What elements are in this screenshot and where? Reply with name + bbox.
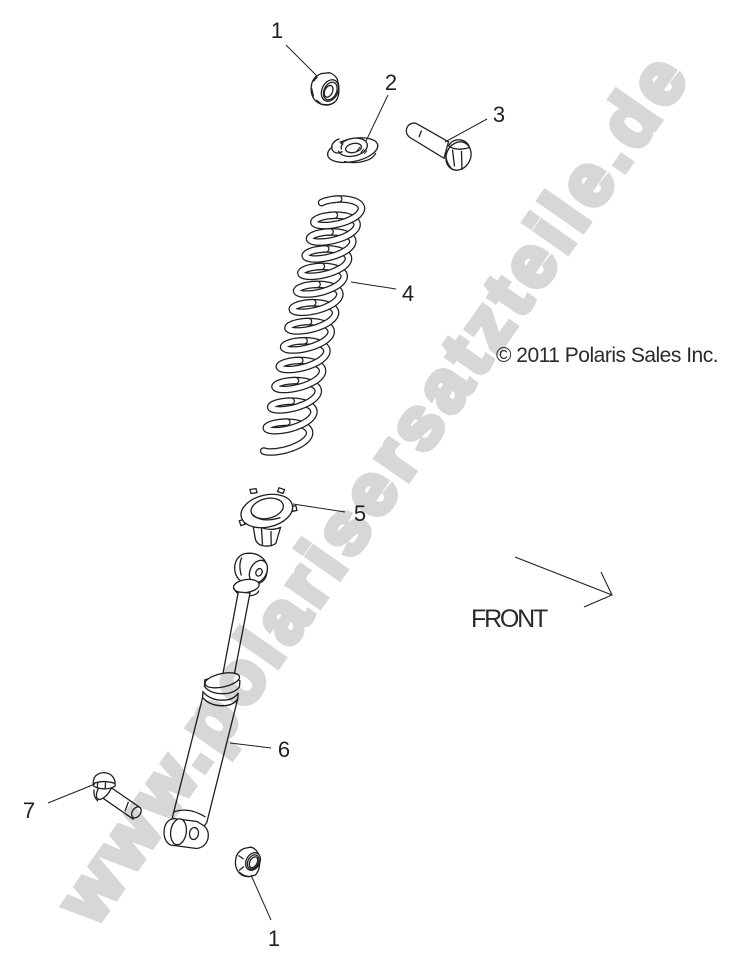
svg-text:www.polarisersatzteile.de: www.polarisersatzteile.de [41, 36, 706, 937]
